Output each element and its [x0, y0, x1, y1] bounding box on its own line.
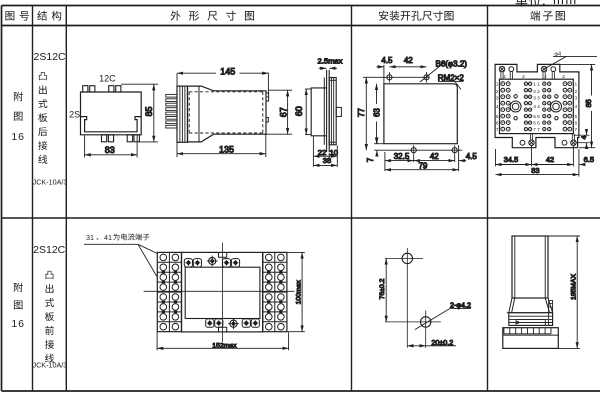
svg-text:JCK-10A/3: JCK-10A/3	[33, 361, 68, 370]
svg-text:67: 67	[278, 107, 288, 117]
svg-text:185MAX: 185MAX	[570, 274, 577, 301]
svg-text:7: 7	[533, 127, 536, 133]
svg-text:3: 3	[496, 95, 499, 101]
svg-text:7: 7	[496, 127, 499, 133]
svg-text:2: 2	[562, 74, 565, 80]
svg-text:1: 1	[533, 81, 536, 87]
svg-text:42: 42	[546, 155, 554, 164]
svg-text:4: 4	[537, 104, 540, 110]
svg-text:7: 7	[537, 127, 540, 133]
svg-text:1: 1	[503, 74, 506, 80]
svg-text:6: 6	[496, 120, 499, 126]
svg-text:135: 135	[219, 144, 234, 154]
svg-text:85: 85	[144, 106, 154, 116]
svg-text:2: 2	[522, 74, 525, 80]
svg-text:2: 2	[574, 89, 577, 95]
svg-text:42: 42	[430, 152, 439, 161]
svg-text:mm: mm	[553, 0, 578, 7]
svg-text:1: 1	[544, 74, 547, 80]
svg-text:32.5: 32.5	[394, 152, 410, 161]
svg-text:2: 2	[496, 89, 499, 95]
svg-text:100max: 100max	[295, 280, 302, 305]
svg-text:7: 7	[366, 157, 375, 162]
svg-text:6.5: 6.5	[584, 155, 594, 164]
svg-text:16: 16	[11, 318, 25, 330]
svg-text:2.5max: 2.5max	[318, 56, 343, 65]
svg-text:1: 1	[496, 81, 499, 87]
svg-text:83: 83	[105, 145, 115, 155]
svg-text:77: 77	[357, 108, 366, 117]
svg-text:4.5: 4.5	[381, 56, 393, 65]
svg-text:B6(φ3.2): B6(φ3.2)	[435, 60, 467, 69]
svg-text:4: 4	[581, 135, 588, 139]
svg-text:6: 6	[537, 120, 540, 126]
svg-text:145: 145	[220, 67, 235, 77]
svg-text:76±0.2: 76±0.2	[379, 278, 386, 299]
svg-text:85: 85	[584, 99, 593, 107]
svg-text:2S12C: 2S12C	[34, 51, 67, 63]
svg-text:4: 4	[533, 104, 536, 110]
svg-text:2: 2	[537, 89, 540, 95]
svg-text:34.5: 34.5	[504, 155, 518, 164]
svg-text:63: 63	[372, 108, 381, 117]
svg-text:1: 1	[574, 81, 577, 87]
svg-text:3: 3	[574, 95, 577, 101]
svg-text:16: 16	[11, 131, 25, 143]
svg-text:83: 83	[531, 166, 539, 175]
svg-text:20±0.2: 20±0.2	[431, 338, 453, 347]
svg-text:4: 4	[496, 104, 499, 110]
svg-text:5: 5	[533, 114, 536, 120]
svg-text:12C: 12C	[99, 74, 116, 84]
svg-text:3: 3	[533, 95, 536, 101]
svg-text:7: 7	[574, 127, 577, 133]
svg-text:4.5: 4.5	[466, 152, 478, 161]
svg-text:42: 42	[404, 56, 413, 65]
svg-text:3: 3	[537, 95, 540, 101]
svg-text:JCK-10A/3: JCK-10A/3	[33, 177, 68, 186]
svg-text:60: 60	[294, 106, 304, 116]
svg-text:2S12C: 2S12C	[33, 244, 66, 256]
svg-text:31: 31	[86, 233, 94, 242]
svg-text:79: 79	[418, 162, 427, 171]
svg-text:152max: 152max	[212, 342, 237, 349]
svg-text:5: 5	[574, 114, 577, 120]
svg-text:2S: 2S	[69, 110, 80, 120]
svg-text:6: 6	[533, 120, 536, 126]
svg-text:6: 6	[574, 120, 577, 126]
svg-text:5: 5	[496, 114, 499, 120]
svg-text:41: 41	[104, 233, 112, 242]
svg-text:RM2×2: RM2×2	[438, 73, 465, 82]
svg-text:5: 5	[537, 114, 540, 120]
svg-text:1: 1	[537, 81, 540, 87]
svg-text:2: 2	[533, 89, 536, 95]
svg-text:4: 4	[574, 104, 577, 110]
svg-text:38: 38	[323, 156, 331, 165]
